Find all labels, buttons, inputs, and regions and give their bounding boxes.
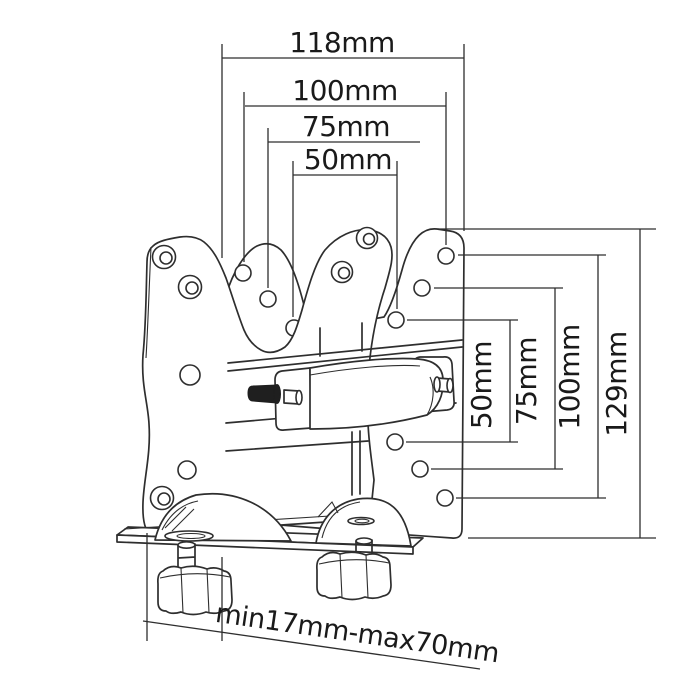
dim-label-50mm: 50mm <box>304 143 392 176</box>
dim-label-v129mm: 129mm <box>600 331 633 437</box>
bracket-technical-drawing: 118mm 100mm 75mm 50mm 50mm 75mm 100mm 12… <box>0 0 700 700</box>
dim-label-v100mm: 100mm <box>553 324 586 430</box>
dim-label-v50mm: 50mm <box>465 341 498 429</box>
left-shelf-slot <box>165 531 213 541</box>
dim-label-75mm: 75mm <box>302 110 390 143</box>
dim-label-v75mm: 75mm <box>510 337 543 425</box>
clamp-right-pin-cap <box>447 379 453 393</box>
diagram-canvas: 118mm 100mm 75mm 50mm 50mm 75mm 100mm 12… <box>0 0 700 700</box>
right-dome-slot <box>348 518 374 525</box>
bracket-drawing <box>117 228 464 615</box>
clamp-left-bolt <box>248 385 277 403</box>
clamp-left-pin-cap <box>296 391 302 405</box>
dim-label-118mm: 118mm <box>289 26 395 59</box>
dim-label-100mm: 100mm <box>292 74 398 107</box>
clamp-left-bolt-cap <box>274 385 281 404</box>
dim-label-clamp-range: min17mm-max70mm <box>214 598 501 669</box>
